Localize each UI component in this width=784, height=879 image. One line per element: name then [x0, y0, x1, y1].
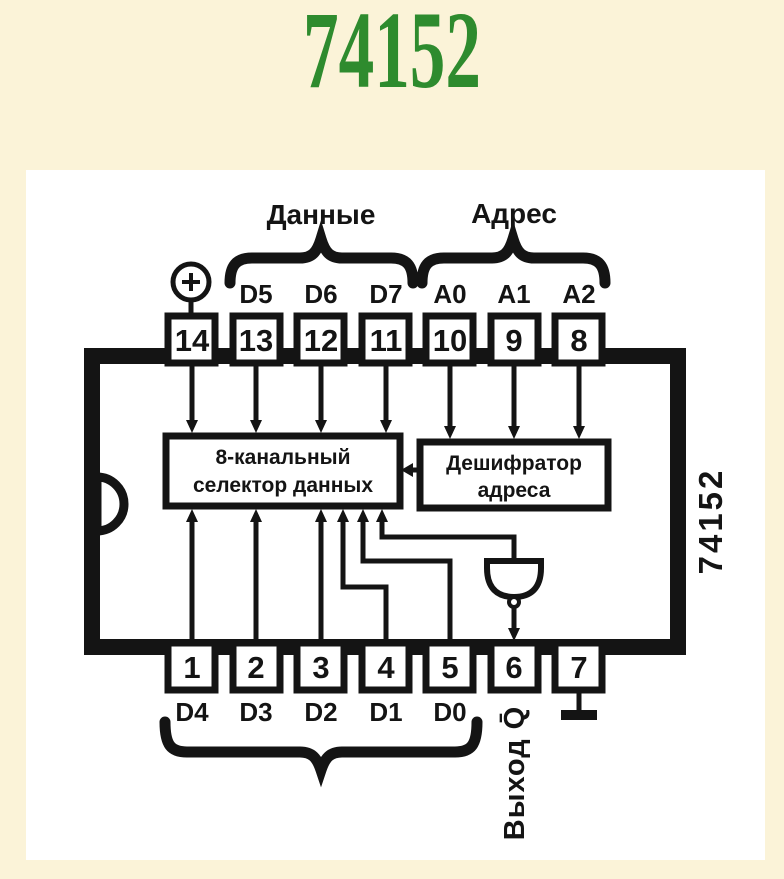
selector-block-line1: 8-канальный — [215, 446, 350, 469]
pin-number-5: 5 — [441, 650, 458, 685]
svg-text:Выход Q̄: Выход Q̄ — [499, 706, 531, 840]
pin-number-13: 13 — [239, 323, 273, 358]
pin-number-3: 3 — [312, 650, 329, 685]
pin-number-14: 14 — [175, 323, 210, 358]
ic-74152-diagram: 74152 8-канальный селектор данных Дешифр… — [0, 0, 784, 879]
top-pin-row: 14 13 12 11 10 9 8 — [168, 316, 602, 363]
data-group-label: Данные — [267, 199, 376, 230]
pin-label-a2: A2 — [562, 279, 595, 309]
pin-label-a0: A0 — [433, 279, 466, 309]
pin-number-9: 9 — [505, 323, 522, 358]
pin-label-d0: D0 — [433, 697, 466, 727]
address-group-label: Адрес — [471, 198, 557, 229]
pin-number-11: 11 — [370, 323, 403, 358]
pin-number-2: 2 — [247, 650, 264, 685]
inversion-bubble-icon — [509, 597, 519, 607]
selector-block-line2: селектор данных — [193, 474, 373, 497]
bottom-pin-row: 1 2 3 4 5 6 7 — [168, 643, 602, 690]
ic-notch-icon — [97, 477, 124, 531]
pin-label-d4: D4 — [175, 697, 209, 727]
pin-label-d6: D6 — [304, 279, 337, 309]
pin-label-d1: D1 — [369, 697, 402, 727]
pin-number-6: 6 — [505, 650, 522, 685]
pin-label-d5: D5 — [239, 279, 272, 309]
page-title: 74152 — [303, 0, 481, 111]
decoder-block-line2: адреса — [478, 479, 551, 502]
output-label: Выход Q̄ — [499, 706, 531, 840]
pin-number-1: 1 — [183, 650, 200, 685]
svg-text:74152: 74152 — [692, 468, 729, 575]
pin-number-4: 4 — [377, 650, 395, 685]
pin-label-d2: D2 — [304, 697, 337, 727]
pin-number-8: 8 — [570, 323, 587, 358]
pin-number-12: 12 — [304, 323, 338, 358]
pin-label-d7: D7 — [369, 279, 402, 309]
decoder-block-line1: Дешифратор — [446, 452, 582, 475]
pin-number-10: 10 — [433, 323, 467, 358]
pin-label-a1: A1 — [497, 279, 530, 309]
pin-number-7: 7 — [570, 650, 587, 685]
chip-side-label: 74152 — [692, 468, 729, 575]
pin-label-d3: D3 — [239, 697, 272, 727]
